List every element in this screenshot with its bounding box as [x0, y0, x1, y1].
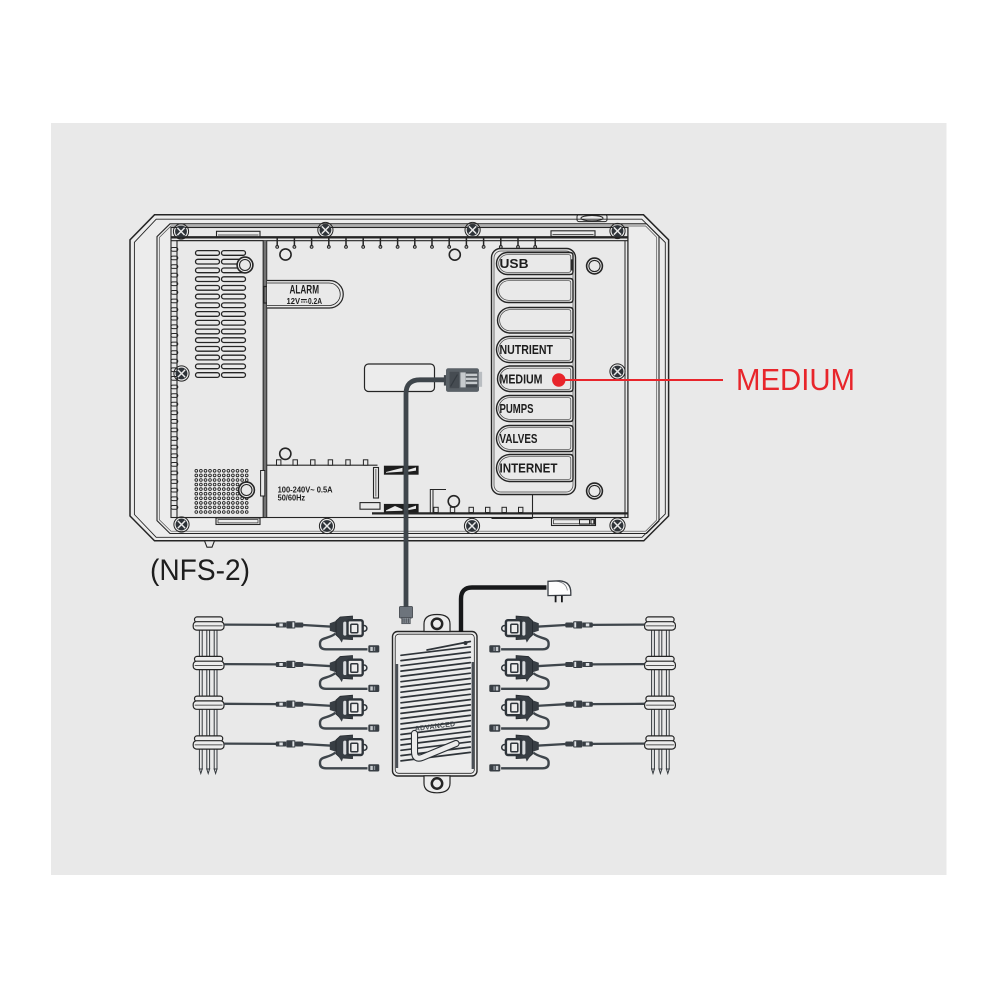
svg-text:MEDIUM: MEDIUM	[500, 371, 543, 386]
svg-text:ALARM: ALARM	[290, 282, 320, 296]
svg-text:INTERNET: INTERNET	[500, 461, 558, 476]
svg-text:(NFS-2): (NFS-2)	[150, 554, 250, 587]
svg-text:VALVES: VALVES	[500, 431, 538, 446]
svg-text:50/60Hz: 50/60Hz	[278, 493, 306, 503]
svg-text:12V: 12V	[287, 297, 301, 306]
svg-text:PUMPS: PUMPS	[500, 401, 534, 416]
svg-text:0.2A: 0.2A	[308, 297, 322, 306]
svg-text:USB: USB	[500, 256, 529, 271]
svg-text:NUTRIENT: NUTRIENT	[500, 342, 554, 357]
svg-text:MEDIUM: MEDIUM	[736, 363, 855, 397]
